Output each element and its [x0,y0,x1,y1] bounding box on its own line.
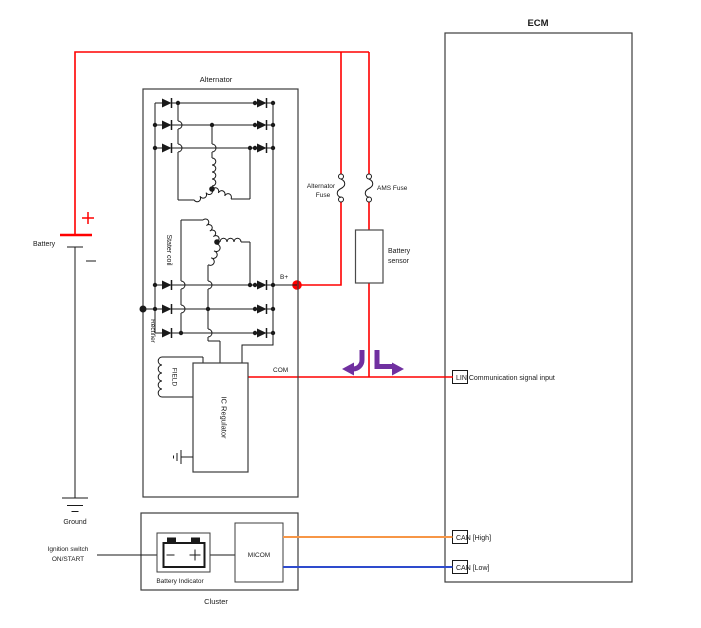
cluster-title: Cluster [204,597,228,606]
wire-battery-positive [75,52,453,377]
diode [257,143,267,153]
stator-coil-segment [212,158,216,186]
lin-arrow-right-icon [377,350,392,367]
alternator-title: Alternator [200,75,233,84]
ignition-switch-label-1: Ignition switch [48,546,89,553]
diode [162,143,172,153]
stator-coil-segment [212,187,233,199]
ic-regulator-label: IC Regulator [220,396,229,439]
fuse-ams: AMS Fuse [365,174,407,202]
diode [162,304,172,314]
alternator-module: Alternator Rectifier [140,75,299,497]
battery-sensor-box [356,230,384,283]
wye-center-node [214,239,220,245]
junction-dots [140,101,276,335]
b-plus-label: B+ [280,274,288,281]
cluster-module: Cluster Ignition switch ON/START Battery… [48,513,298,606]
ams-fuse-label: AMS Fuse [377,185,408,192]
diode [162,328,172,338]
fuse-alternator: Alternator Fuse [307,174,345,202]
alternator-fuse-label-1: Alternator [307,183,336,190]
battery-indicator-label: Battery Indicator [156,578,204,585]
micom: MICOM [235,523,283,582]
ignition-switch-label-2: ON/START [52,556,84,563]
field-coil-winding [158,357,162,397]
wye-center-node [209,186,215,192]
power-wiring [60,52,453,377]
rectifier-label: Rectifier [149,319,156,344]
battery-sensor: Battery sensor [356,230,411,283]
diode [257,280,267,290]
battery-symbol: Battery [33,241,96,498]
diode [162,98,172,108]
battery-label: Battery [33,241,56,248]
diode [162,280,172,290]
ground-symbol: Ground [62,498,88,526]
lin-direction-arrows [342,350,404,376]
ecm-module: ECM LIN Communication signal input CAN [… [445,18,632,582]
alternator-fuse-label-2: Fuse [316,192,331,199]
lin-input-label: LIN Communication signal input [456,375,555,382]
lin-arrow-left-head [342,363,354,376]
stator-coil-segment [220,238,241,242]
diode-rows [143,103,297,333]
schematic-canvas: ECM LIN Communication signal input CAN [… [0,0,701,628]
case-ground-node [140,306,147,313]
can-high-label: CAN [High] [456,535,491,542]
rectifier-circuit: Rectifier [143,98,297,363]
battery-terminal-icon [191,538,200,544]
charging-system-diagram: ECM LIN Communication signal input CAN [… [0,0,701,628]
micom-label: MICOM [248,552,270,559]
stator-coil-label: Stater coil [165,234,172,266]
ecm-box [445,33,632,582]
positive-bus [242,103,273,363]
battery-indicator: Battery Indicator [156,533,210,585]
ecm-title: ECM [527,18,548,29]
ground-label: Ground [63,519,86,526]
regulator-ground-symbol [174,450,194,464]
stator-windings: Stater coil [165,158,241,267]
lin-arrow-right-head [392,363,404,376]
battery-sensor-label-2: sensor [388,258,410,265]
diode [257,120,267,130]
diode [257,304,267,314]
diode [162,120,172,130]
ic-regulator: IC Regulator [174,363,249,472]
phase-wires [178,103,250,363]
battery-terminal-icon [167,538,176,544]
plus-icon [82,212,94,224]
stator-coil-segment [208,244,221,267]
stator-coil-segment [203,218,220,242]
diode [257,328,267,338]
battery-sensor-label-1: Battery [388,248,411,255]
can-low-label: CAN [Low] [456,565,490,572]
diode [257,98,267,108]
com-label: COM [273,367,288,374]
field-label: FIELD [171,368,178,387]
